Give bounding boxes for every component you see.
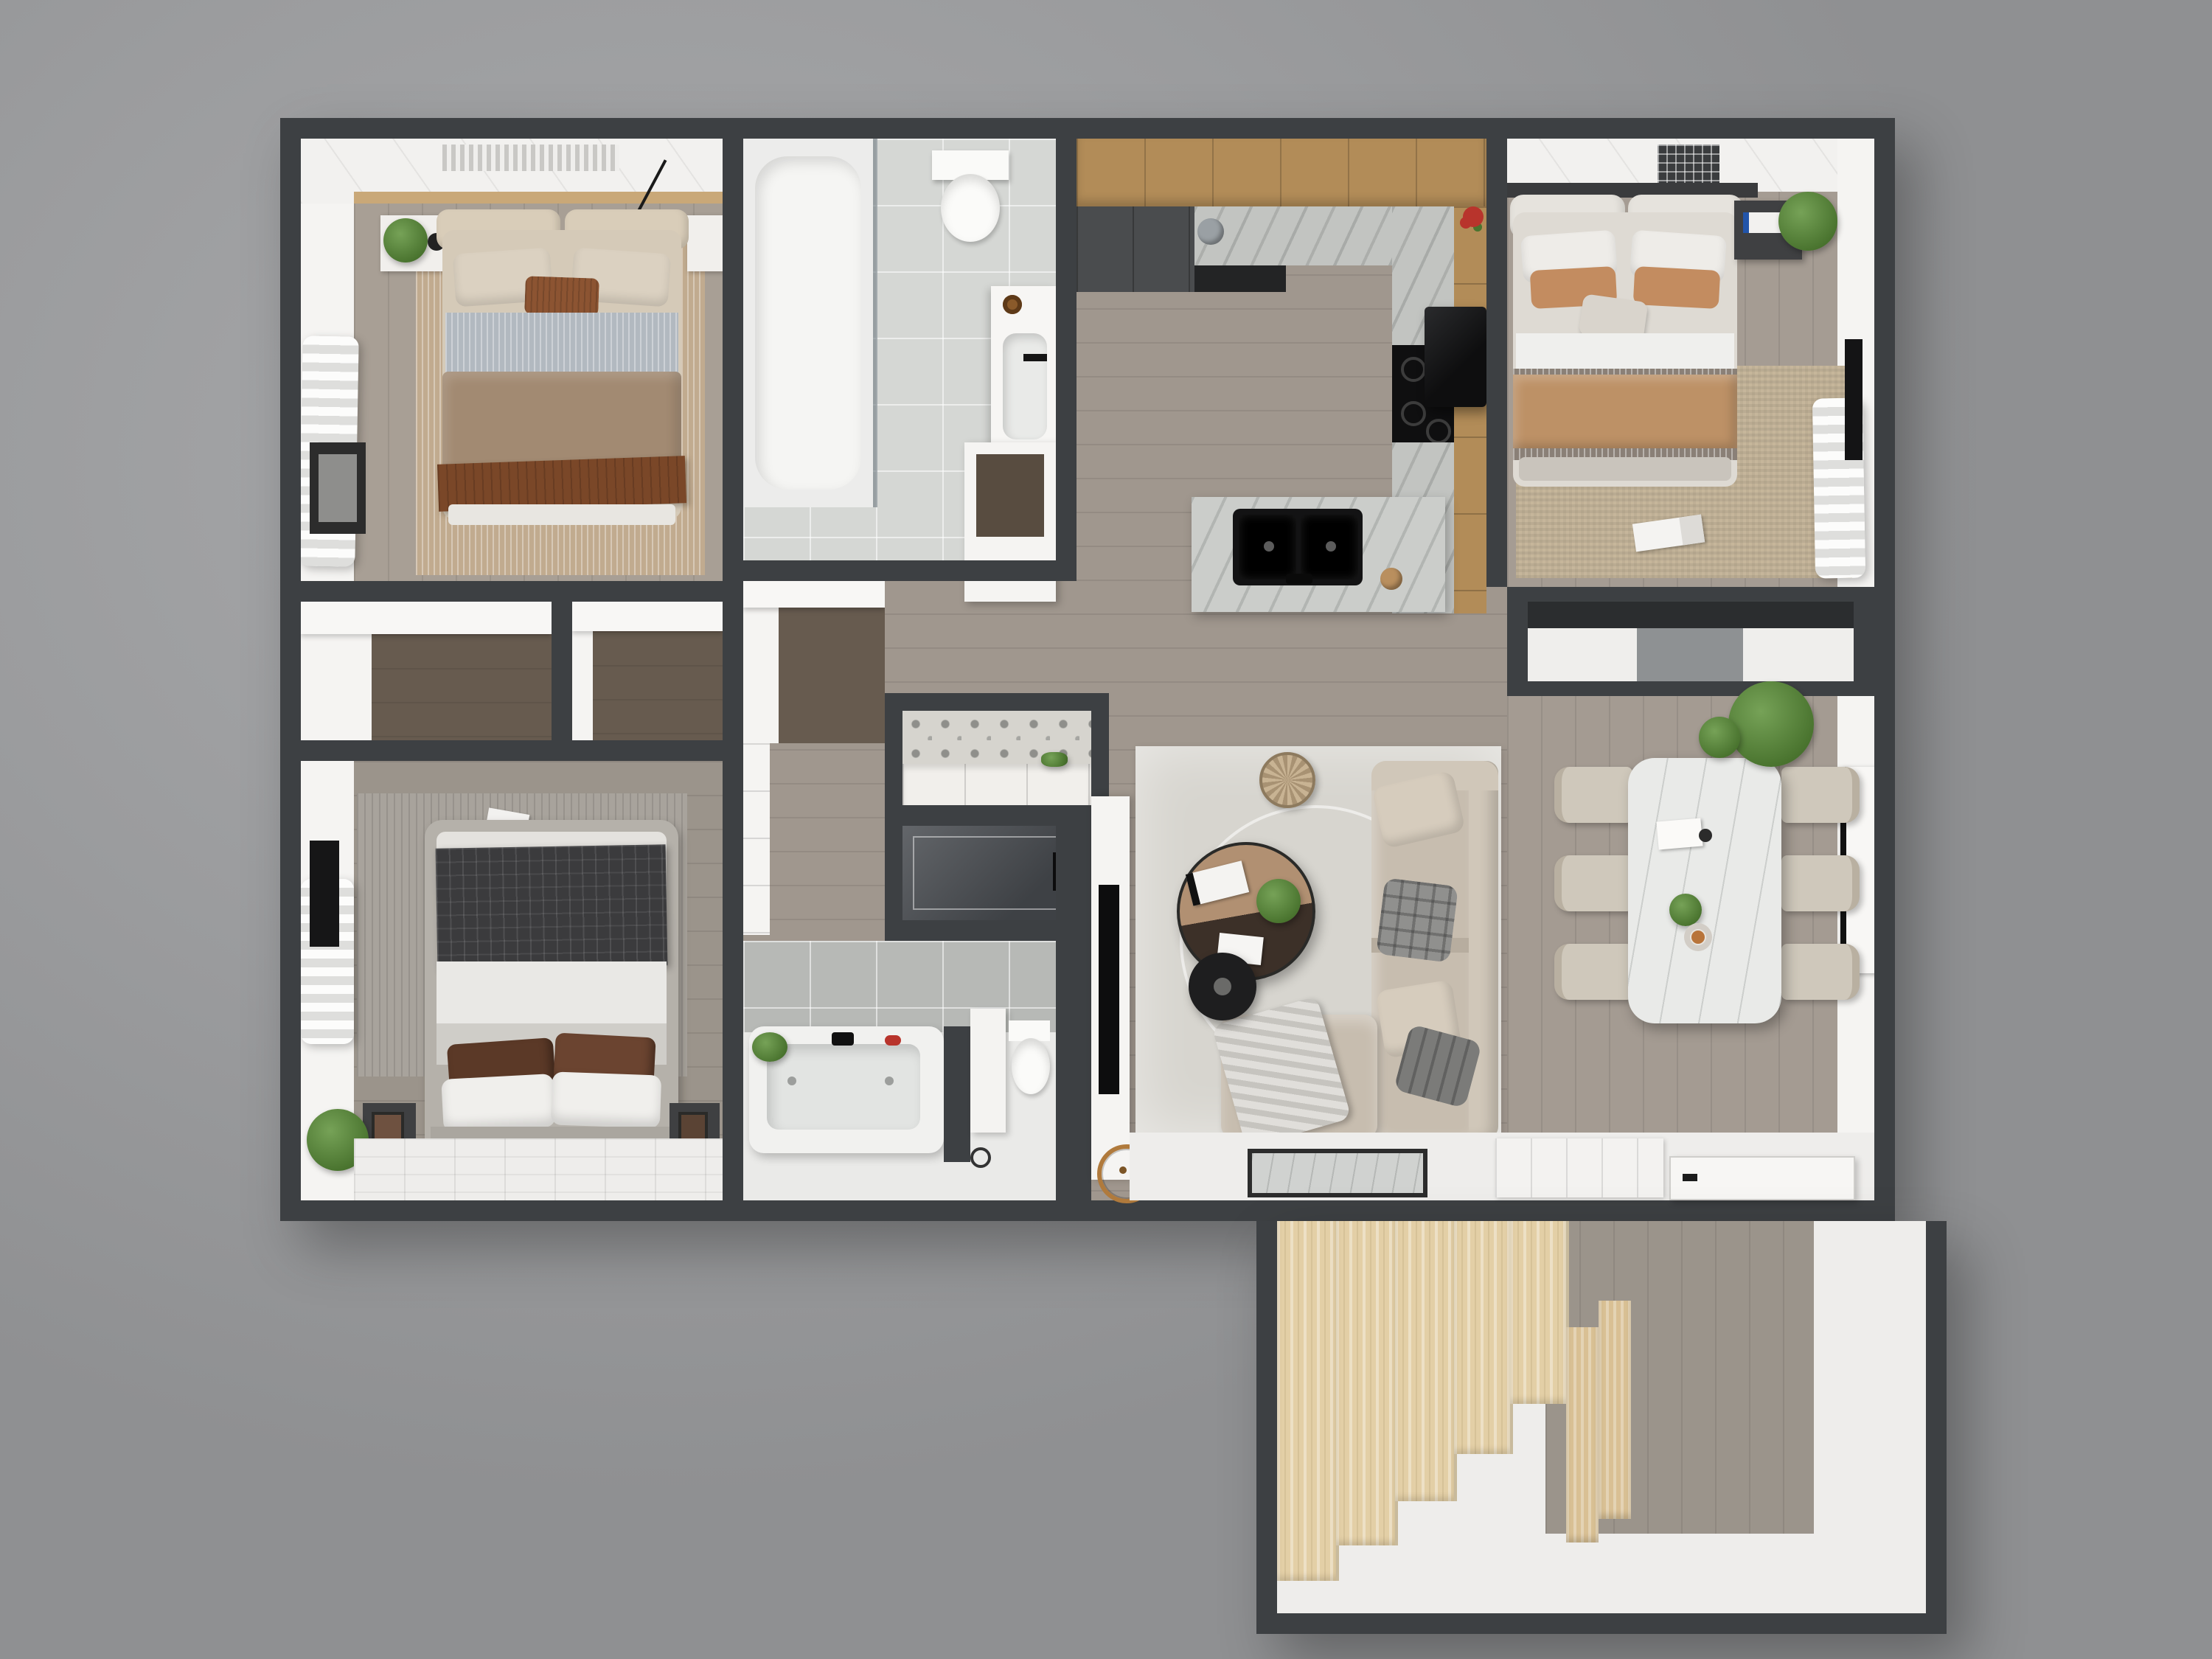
ac-vent [442,145,619,171]
wheel-hub [1119,1166,1127,1174]
tv-bedroom-3 [310,841,339,947]
dining-chair [1781,944,1860,1000]
wall-bathroom1-bottom [743,560,1056,581]
tv-living [1099,885,1119,1094]
floor-plan-scene [0,0,2212,1659]
black-disc-tray [1189,953,1256,1020]
closet-b-shelf [572,602,723,631]
kitchen-upper-cabinets [1077,139,1486,206]
burner [1426,419,1451,442]
stair-step-4 [1454,1221,1513,1454]
dining-chair [1781,855,1860,911]
hall-cabinet-interior [976,454,1044,537]
hanging-plant [1778,192,1837,251]
island-faucet [1286,574,1312,584]
tub-jet [787,1077,796,1085]
dining-plant-large [1728,681,1814,767]
dining-right-wall-face [1837,696,1874,1133]
kitchen-oven [1194,262,1286,292]
tub-jet [885,1077,894,1085]
woven-basket [1259,752,1315,808]
dining-chair [1554,944,1632,1000]
table-plant-sprig [1669,894,1702,926]
burner [1401,357,1426,382]
stair-step-2 [1336,1221,1398,1545]
wardrobe-corridor [1507,587,1874,696]
sheet-gray-striped [445,313,678,380]
mattress-foot [448,504,675,525]
bed-2-foot [1519,457,1731,481]
tv-bedroom-2 [1845,339,1863,460]
closet-b-floor [593,631,723,740]
bedroom-2-left-wall [1486,139,1507,587]
closet-b [572,602,723,740]
closet-a-floor [372,634,552,740]
dining-plant-small [1699,717,1740,758]
bedroom-3 [301,761,723,1200]
bathroom-2 [743,941,1056,1200]
pillow-accent-brown [524,276,599,316]
pillow-sofa-plaid [1376,877,1458,962]
wall-bedroom1-bottom [301,581,743,602]
bedroom-2 [1486,139,1874,587]
toilet-2-bowl [1012,1038,1050,1094]
dining-chair [1781,767,1860,823]
stair-step-3 [1395,1221,1457,1501]
entry-doormat [1248,1149,1427,1197]
dining-chair [1554,855,1632,911]
kitchen-cabinet-right-strip [1454,206,1486,613]
bath-2-partition [944,1026,970,1162]
tub-faucet [832,1032,854,1046]
dining-table [1628,758,1781,1023]
table-book [1656,818,1703,849]
stair-lower-flight-b [1599,1301,1631,1519]
bathtub-1 [755,156,861,490]
vanity-faucet [1023,354,1047,361]
range-hood [1425,307,1486,407]
entry-paneled-door [1495,1138,1663,1197]
living-tv-wall [1091,796,1130,1180]
laundry-cabinet [902,764,1091,805]
stair-lower-flight-a [1566,1327,1599,1543]
throw-brown-fringed [437,456,686,512]
wall-left-spine [723,139,743,1200]
closet-c-shelf [743,581,885,608]
stair-step-1 [1277,1221,1339,1581]
tub-basin [767,1044,920,1130]
kitchen-counter-dark [1077,206,1194,292]
stair-step-5 [1510,1221,1569,1404]
bath-2-bench [970,1009,1006,1133]
plant-nightstand [383,218,428,262]
toilet-bowl [941,174,1000,242]
kitchen-island [1192,497,1445,612]
plate-food [1691,931,1705,944]
island-decor [1380,568,1402,590]
soap-dish [1003,295,1022,314]
hall-closet-doors [743,743,770,935]
sheet-fold-white [437,961,667,1029]
nightstand-right [687,215,723,271]
hall-closet-c [743,581,885,743]
glass-divider [873,139,877,507]
closet-a [301,602,552,740]
table-cup [1699,829,1712,842]
wall-living-bath [1056,826,1091,1200]
vanity-sink [1003,333,1047,439]
pillow-tan-b [1633,266,1721,309]
bathroom-2-tile-wall [743,941,1056,1032]
small-fan-decor [970,1147,991,1168]
pillow-white-right [551,1071,661,1128]
nightstand-magazine [1743,212,1781,233]
sink-drain [1264,541,1274,552]
closet-a-shelf [301,602,552,634]
sink-drain [1326,541,1336,552]
wall-bathroom1-right [1056,139,1077,581]
tub-button-red [885,1035,901,1046]
burner [1401,401,1426,426]
blanket-tan [1513,375,1737,451]
ceiling-vent [1658,145,1719,183]
bedroom-1 [301,139,723,581]
wall-closets-bottom [301,740,743,761]
dining-chair [1554,767,1632,823]
door-handle [1683,1174,1697,1181]
wardrobe-panel-gray [1637,628,1743,681]
plaid-blanket-dark [436,844,668,969]
art-frame-inner [319,454,357,522]
flowers-red [1463,206,1484,227]
wardrobe-shadow-top [1528,602,1854,631]
disc-center [1214,978,1231,995]
kettle [1197,218,1224,245]
entry-door-leaf [1669,1156,1855,1200]
wardrobe-floor-white [354,1138,723,1200]
coffee-table-plant [1256,879,1301,923]
tub-plant [752,1032,787,1062]
closet-c-floor [779,608,885,743]
pillow-white-left [441,1074,556,1133]
laundry-sprig [1041,752,1068,767]
